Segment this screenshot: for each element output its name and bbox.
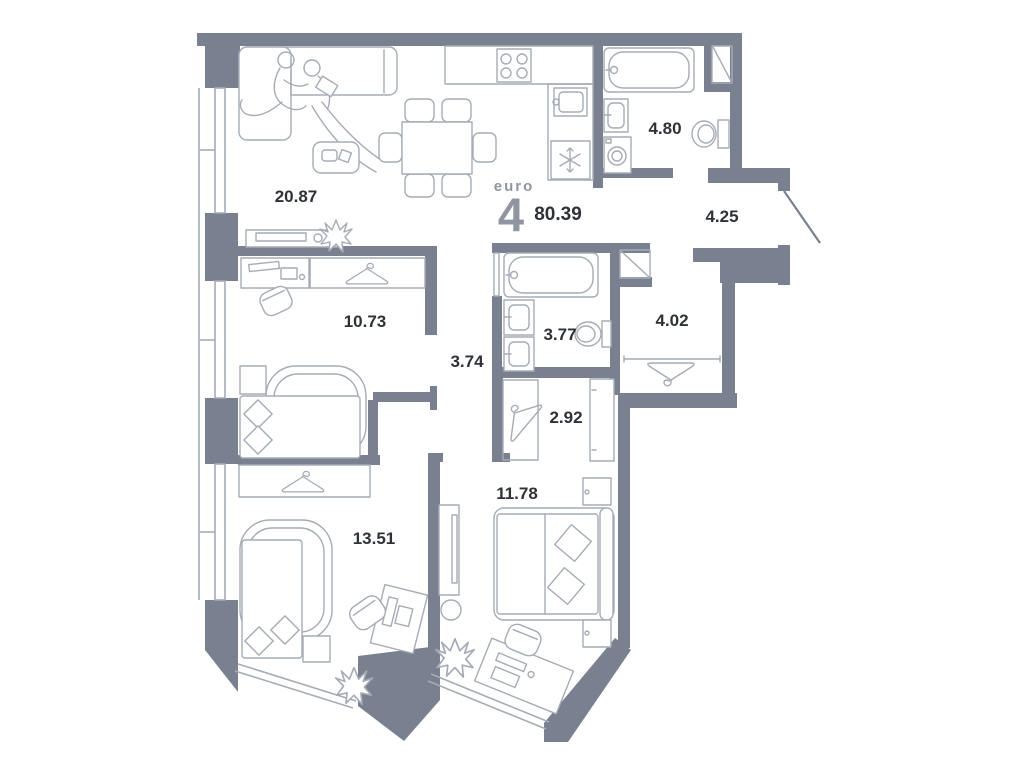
room-label-bedroom-master: 11.78 (496, 484, 538, 503)
toilet-main (692, 120, 729, 148)
total-area: 80.39 (534, 204, 582, 225)
vent-shaft-top (704, 46, 734, 92)
window-bedroom-left (215, 281, 225, 398)
type-number: 4 (498, 188, 524, 241)
hanger-icon (648, 363, 694, 386)
plant-pot (441, 600, 461, 620)
bed-bottom (240, 520, 332, 662)
room-label-corridor: 3.74 (450, 352, 484, 371)
nightstand (583, 478, 611, 505)
double-sinks (504, 300, 534, 371)
floor-plan-page: 20.87 4.80 4.25 10.73 3.74 3.77 4.02 2.9… (0, 0, 1024, 768)
plant-icon (436, 639, 474, 677)
closet-hanger-section (503, 380, 538, 460)
room-label-living: 20.87 (275, 187, 318, 206)
bathtub-main (604, 48, 694, 92)
hanger-icon (346, 263, 388, 284)
bathtub-second (504, 253, 598, 297)
fridge (551, 141, 590, 179)
bed-master (494, 478, 614, 647)
sink-main-bath (604, 99, 628, 132)
bathroom-door (494, 253, 499, 296)
room-label-wardrobe: 4.02 (655, 311, 688, 330)
room-label-bedroom-left: 10.73 (344, 312, 387, 331)
room-label-bathroom-main: 4.80 (648, 119, 681, 138)
bed-left (240, 366, 366, 458)
closet-cabinet (590, 379, 614, 461)
room-label-bedroom-bottom: 13.51 (353, 529, 396, 548)
entrance-door (784, 191, 820, 243)
room-label-closet: 2.92 (549, 408, 582, 427)
dresser-desk (241, 258, 309, 288)
desk-chair (257, 284, 294, 318)
washing-machine (604, 137, 631, 173)
room-label-hallway: 4.25 (705, 207, 738, 226)
coffee-table (313, 142, 359, 173)
window-angled-left (235, 664, 356, 708)
floor-plan: 20.87 4.80 4.25 10.73 3.74 3.77 4.02 2.9… (0, 0, 1024, 768)
nightstand (583, 620, 611, 647)
apartment-title: euro 4 80.39 (494, 178, 582, 241)
wardrobe-rod (624, 356, 720, 362)
hanger-icon (282, 471, 324, 492)
vent-shaft-middle (620, 250, 650, 278)
dining-table (379, 99, 496, 197)
window-living (215, 88, 225, 213)
tv-cabinet-master (439, 505, 461, 620)
room-label-bathroom-second: 3.77 (543, 325, 576, 344)
kitchen-sink (553, 88, 587, 116)
sofa (239, 47, 397, 140)
toilet-second (575, 321, 611, 347)
bedside-table (303, 636, 330, 662)
window-bedroom-bottom (215, 464, 225, 600)
